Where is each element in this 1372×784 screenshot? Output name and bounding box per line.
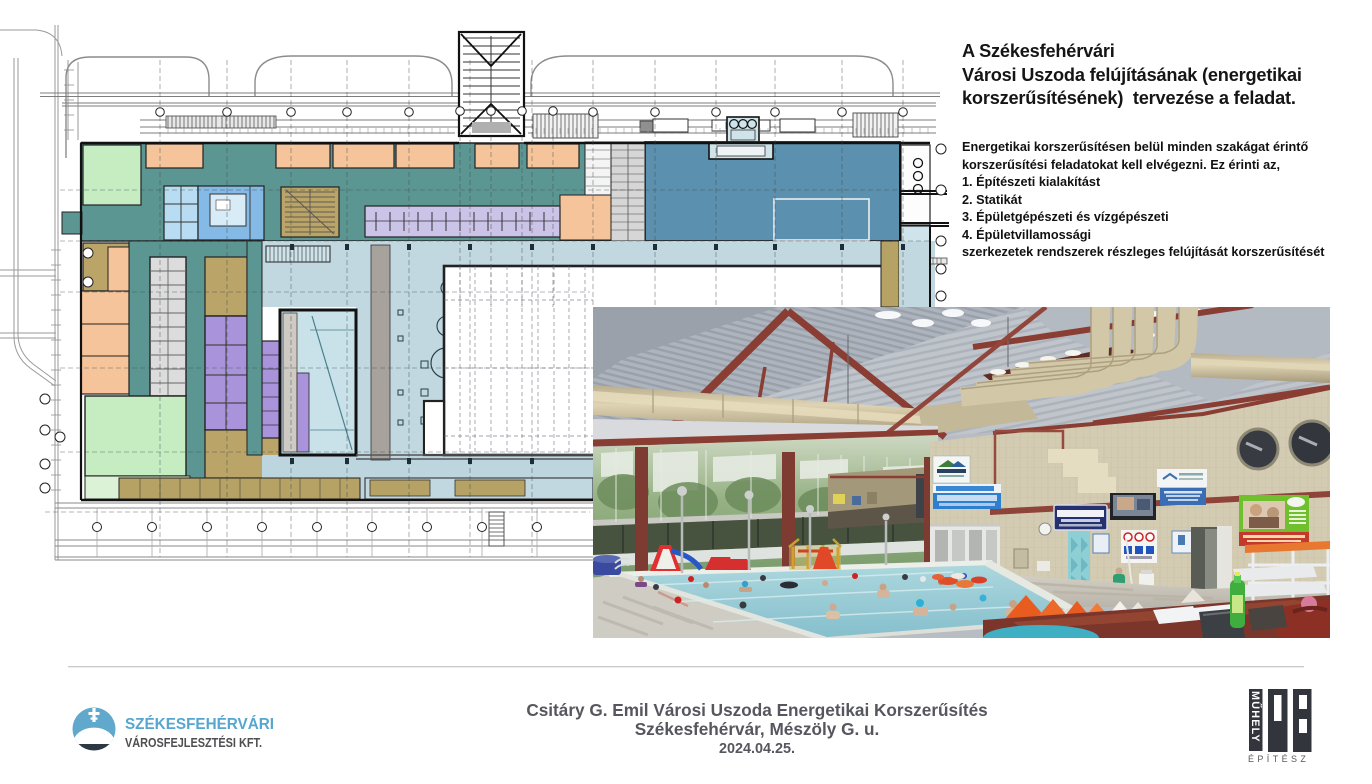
svg-text:VÁROSFEJLESZTÉSI KFT.: VÁROSFEJLESZTÉSI KFT. (125, 735, 262, 750)
svg-text:ÉPÍTÉSZ: ÉPÍTÉSZ (1248, 754, 1309, 764)
svg-text:SZÉKESFEHÉRVÁRI: SZÉKESFEHÉRVÁRI (125, 716, 274, 733)
svg-text:MŰHELY: MŰHELY (1249, 691, 1262, 743)
